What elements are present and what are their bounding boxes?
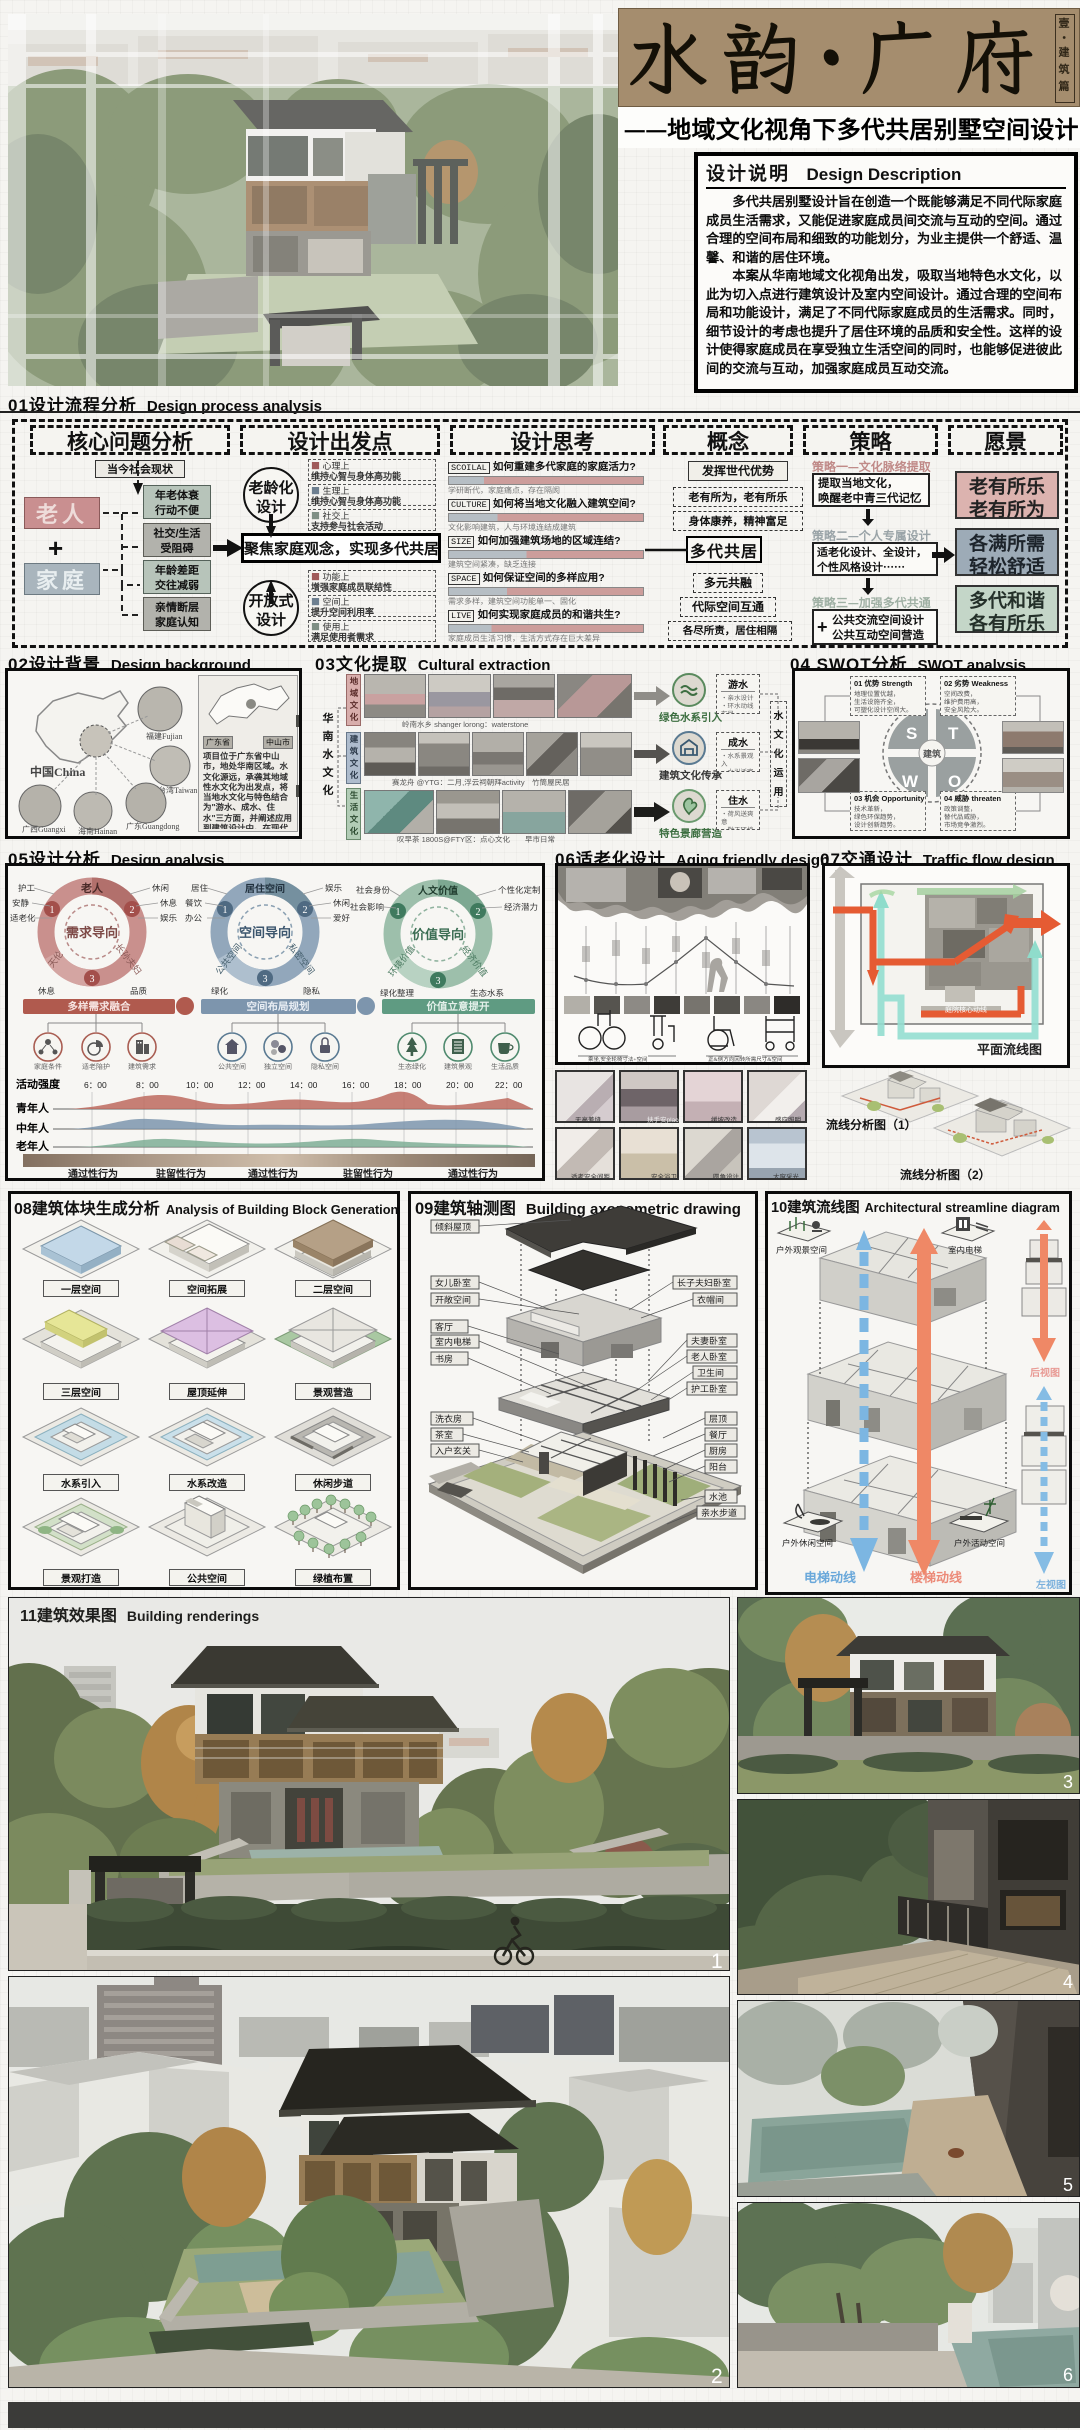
svg-text:5: 5 [1063,2175,1073,2195]
svg-text:办公: 办公 [185,912,203,924]
svg-text:休息: 休息 [160,897,178,909]
svg-text:品质: 品质 [130,985,148,997]
svg-text:建筑需求: 建筑需求 [128,1062,156,1072]
svg-text:入户玄关: 入户玄关 [435,1444,471,1457]
svg-text:20：00: 20：00 [446,1080,474,1090]
svg-text:空间导向: 空间导向 [239,922,291,941]
svg-text:1: 1 [396,903,401,918]
svg-text:休息: 休息 [38,985,56,997]
svg-text:娱乐: 娱乐 [325,882,343,894]
svg-text:多样需求融合: 多样需求融合 [68,999,131,1014]
svg-text:老人: 老人 [80,880,104,896]
svg-text:2: 2 [303,901,308,916]
svg-text:建筑景观: 建筑景观 [444,1062,472,1072]
svg-text:16：00: 16：00 [342,1080,370,1090]
svg-text:开敞空间: 开敞空间 [435,1293,471,1306]
svg-text:福建Fujian: 福建Fujian [146,731,182,742]
svg-text:广西Guangxi: 广西Guangxi [22,824,66,835]
svg-text:隐私: 隐私 [303,985,321,997]
svg-text:安静: 安静 [12,897,30,909]
svg-text:6：00: 6：00 [84,1080,107,1090]
svg-text:生活品质: 生活品质 [491,1062,519,1072]
svg-text:休闲: 休闲 [333,897,350,909]
svg-text:2: 2 [711,2365,723,2388]
svg-text:层顶: 层顶 [709,1412,727,1425]
svg-text:驻留性行为: 驻留性行为 [156,1165,206,1178]
svg-text:绿化整理: 绿化整理 [380,987,415,999]
svg-text:电梯动线: 电梯动线 [804,1567,856,1586]
svg-text:户外活动空间: 户外活动空间 [954,1537,1005,1549]
svg-text:隐私空间: 隐私空间 [311,1062,339,1072]
svg-text:22：00: 22：00 [495,1080,523,1090]
svg-text:左视图: 左视图 [1035,1576,1066,1591]
svg-text:适老陪护: 适老陪护 [82,1062,110,1072]
svg-text:适老化: 适老化 [10,912,36,924]
svg-text:书房: 书房 [435,1352,453,1365]
svg-text:生态水系: 生态水系 [470,987,504,999]
svg-text:家庭条件: 家庭条件 [34,1062,62,1072]
svg-text:18：00: 18：00 [394,1080,422,1090]
svg-text:3: 3 [263,970,268,985]
svg-text:室内电梯: 室内电梯 [948,1244,983,1256]
svg-text:阳台: 阳台 [709,1460,727,1473]
svg-text:居住: 居住 [191,882,209,894]
svg-text:4: 4 [1063,1972,1073,1992]
svg-text:价值导向: 价值导向 [412,924,464,943]
svg-text:海南Hainan: 海南Hainan [78,826,117,836]
svg-text:户外休闲空间: 户外休闲空间 [782,1537,833,1549]
svg-text:价值立意提开: 价值立意提开 [427,999,490,1014]
svg-text:女儿卧室: 女儿卧室 [435,1276,471,1289]
svg-text:庭院核心动线: 庭院核心动线 [945,1005,987,1015]
svg-text:茶室: 茶室 [435,1428,453,1441]
svg-text:通过性行为: 通过性行为 [248,1165,298,1178]
svg-text:倾斜屋顶: 倾斜屋顶 [435,1220,471,1233]
svg-text:通过性行为: 通过性行为 [448,1165,498,1178]
svg-text:衣帽间: 衣帽间 [697,1293,724,1306]
svg-text:绿化: 绿化 [211,985,229,997]
svg-text:青年人: 青年人 [16,1100,50,1116]
svg-text:8：00: 8：00 [136,1080,159,1090]
svg-text:爱好: 爱好 [333,912,351,924]
svg-text:个性化定制: 个性化定制 [498,884,541,896]
svg-text:餐厅: 餐厅 [709,1428,727,1441]
svg-text:2: 2 [476,903,481,918]
svg-text:人文价值: 人文价值 [418,882,458,897]
svg-text:厨房: 厨房 [709,1444,727,1457]
svg-text:2: 2 [130,901,135,916]
svg-text:社会影响: 社会影响 [350,901,384,913]
svg-text:独立空间: 独立空间 [264,1062,292,1072]
svg-text:3: 3 [1063,1772,1073,1792]
svg-text:楼梯动线: 楼梯动线 [910,1567,962,1586]
svg-text:夫妻卧室: 夫妻卧室 [691,1334,727,1347]
svg-text:广东Guangdong: 广东Guangdong [126,821,179,832]
svg-text:6: 6 [1063,2365,1073,2385]
svg-text:中年人: 中年人 [16,1120,50,1136]
svg-text:1: 1 [50,901,55,916]
svg-text:老人卧室: 老人卧室 [691,1350,727,1363]
svg-text:社会身份: 社会身份 [356,884,391,896]
svg-text:水池: 水池 [709,1490,727,1503]
svg-text:居住空间: 居住空间 [245,880,285,895]
svg-text:餐饮: 餐饮 [185,897,203,909]
svg-text:14：00: 14：00 [290,1080,318,1090]
svg-text:娱乐: 娱乐 [160,912,178,924]
svg-text:12：00: 12：00 [238,1080,266,1090]
svg-text:长子夫妇卧室: 长子夫妇卧室 [677,1276,731,1289]
svg-text:公共空间: 公共空间 [218,1062,246,1072]
svg-text:3: 3 [90,970,95,985]
svg-text:活动强度: 活动强度 [16,1076,61,1092]
svg-text:洗衣房: 洗衣房 [435,1412,462,1425]
svg-text:需求导向: 需求导向 [66,922,118,941]
svg-text:平面流线图: 平面流线图 [977,1039,1042,1058]
svg-text:休闲: 休闲 [152,882,169,894]
svg-text:客厅: 客厅 [435,1320,453,1333]
svg-text:空间布局规划: 空间布局规划 [247,999,310,1014]
svg-text:老年人: 老年人 [15,1138,50,1154]
svg-text:1: 1 [711,1950,723,1971]
svg-text:通过性行为: 通过性行为 [68,1165,118,1178]
svg-text:3: 3 [436,972,441,987]
svg-text:经济潜力: 经济潜力 [504,901,538,913]
svg-text:正&侧方向回转所需尺寸&空间: 正&侧方向回转所需尺寸&空间 [708,1055,783,1062]
svg-text:护工: 护工 [18,882,36,894]
svg-text:1: 1 [223,901,228,916]
svg-text:护工卧室: 护工卧室 [691,1382,727,1395]
svg-text:乘坐,安全轮椅寸法+空间: 乘坐,安全轮椅寸法+空间 [588,1055,647,1062]
svg-text:户外观景空间: 户外观景空间 [776,1244,827,1256]
svg-text:生态绿化: 生态绿化 [398,1062,426,1072]
svg-text:驻留性行为: 驻留性行为 [343,1165,393,1178]
svg-text:后视图: 后视图 [1030,1364,1060,1379]
svg-text:室内电梯: 室内电梯 [435,1335,471,1348]
svg-text:10：00: 10：00 [186,1080,214,1090]
svg-text:亲水步道: 亲水步道 [701,1506,737,1519]
svg-text:卫生间: 卫生间 [697,1366,724,1379]
